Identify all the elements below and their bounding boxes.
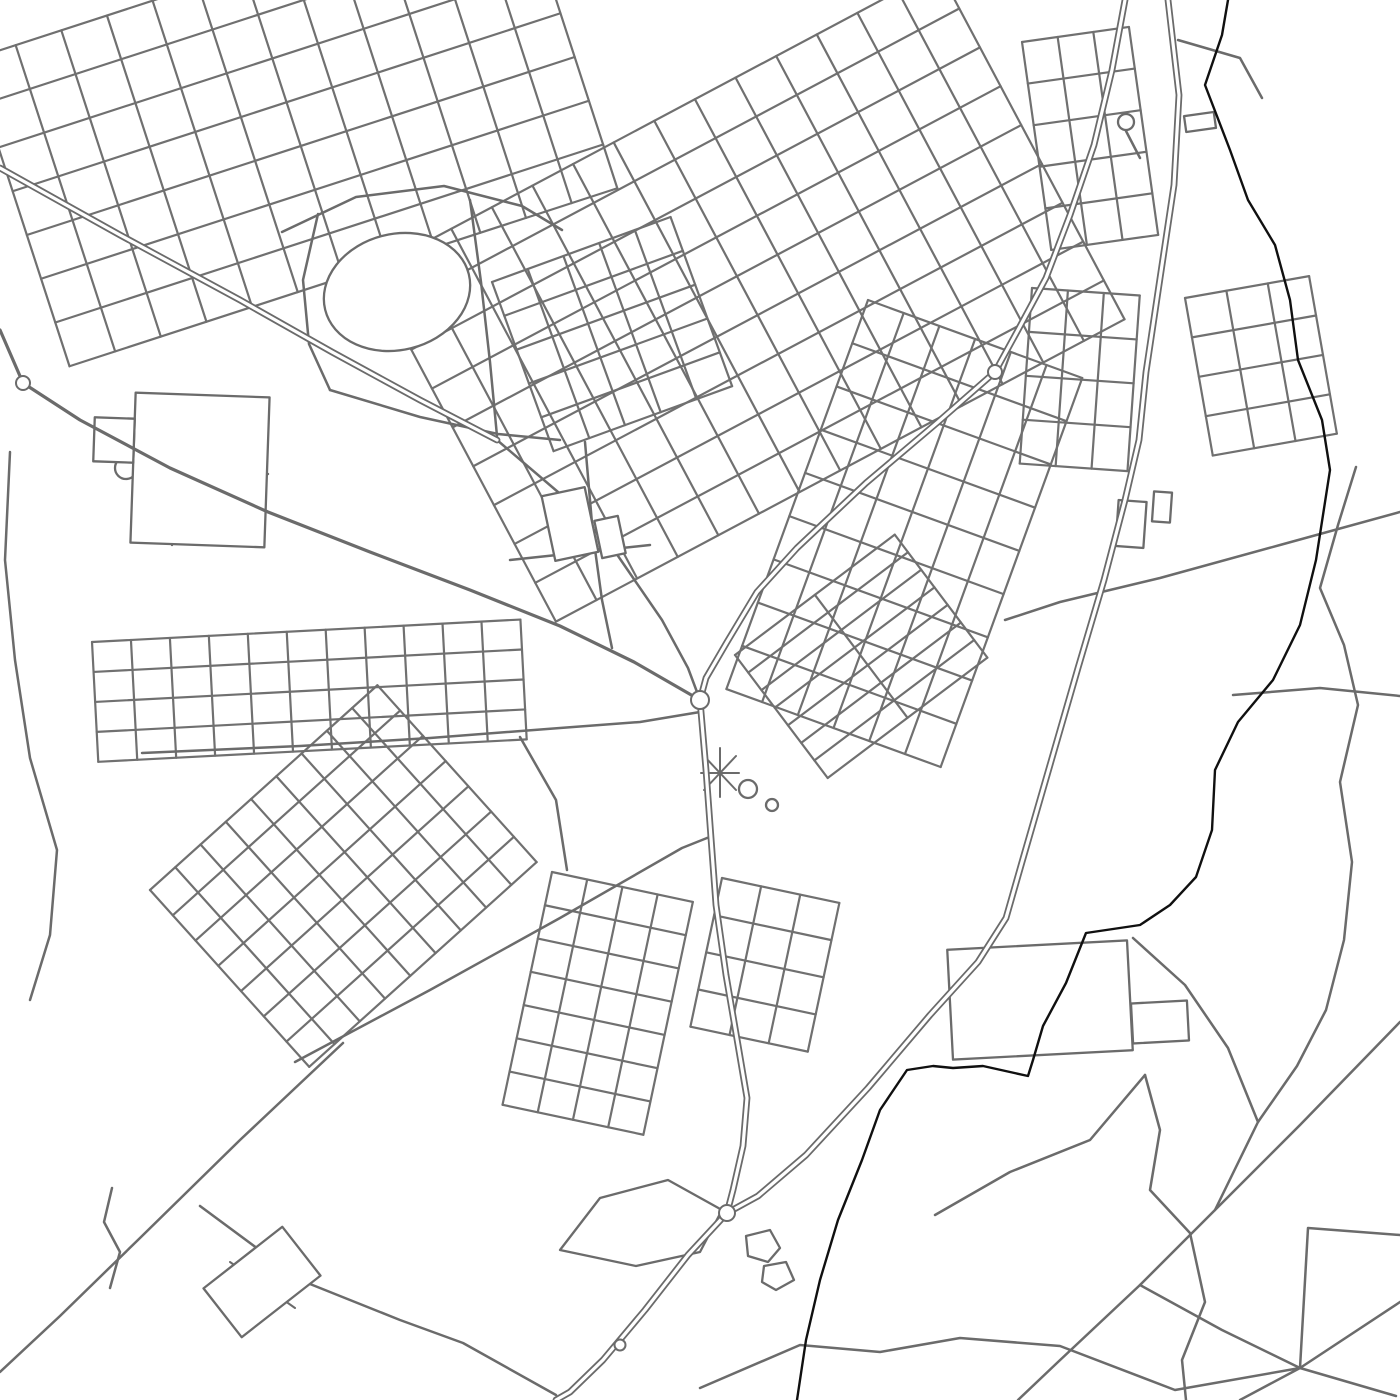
rural-link-a bbox=[935, 1075, 1145, 1215]
grid-northeast-upper bbox=[1022, 27, 1158, 250]
artery-south-casing bbox=[556, 700, 747, 1400]
map-page bbox=[0, 0, 1400, 1400]
roundabout-northeast bbox=[988, 365, 1002, 379]
stadium-east-road bbox=[470, 200, 497, 436]
junction-arm-ne bbox=[1300, 1302, 1400, 1368]
left-edge-curvy-road bbox=[5, 452, 57, 1000]
southwest-grid-boundary bbox=[295, 836, 712, 1062]
layer-street-grids bbox=[0, 0, 1337, 1135]
stream-squiggle bbox=[104, 1188, 120, 1288]
grid-south-central bbox=[503, 872, 693, 1135]
roundabout-center bbox=[691, 691, 709, 709]
rural-crossriver-road bbox=[1005, 512, 1400, 620]
northeast-side-road bbox=[1178, 40, 1262, 98]
junction-arm-w bbox=[1140, 1285, 1300, 1368]
roundabout-south bbox=[719, 1205, 735, 1221]
rural-bottom-road bbox=[700, 1338, 1300, 1390]
interchange-leaf bbox=[560, 1180, 722, 1266]
plaza-circle-large bbox=[739, 780, 757, 798]
plaza-circle-small bbox=[766, 799, 778, 811]
grid-midwest-blocks bbox=[92, 620, 527, 762]
river bbox=[797, 0, 1330, 1400]
campus-rect-west-annex bbox=[93, 417, 135, 462]
rural-long-diagonal-se bbox=[1018, 1022, 1400, 1400]
diagonal-west-artery bbox=[0, 330, 700, 700]
roundabout-west bbox=[16, 376, 30, 390]
grid-northwest bbox=[0, 0, 617, 366]
building-sw bbox=[204, 1227, 321, 1337]
pond-blob-a bbox=[746, 1230, 780, 1262]
grid-riverside-blocks bbox=[1185, 276, 1337, 455]
compound-se-annex bbox=[1131, 1001, 1189, 1044]
junction-arm-n bbox=[1300, 1228, 1400, 1368]
artery-northeast-curve-casing bbox=[700, 0, 1125, 700]
artery-south-median bbox=[556, 700, 747, 1400]
building-east-b bbox=[1152, 491, 1172, 522]
rural-curvy-vertical-se bbox=[1145, 1075, 1205, 1400]
rural-east-ridge bbox=[1215, 467, 1358, 1210]
artery-northeast-curve-median bbox=[700, 0, 1125, 700]
roundabout-south-minor bbox=[615, 1340, 626, 1351]
campus-rect-west bbox=[130, 393, 269, 548]
junction-arm-se bbox=[1300, 1368, 1396, 1396]
layer-major-arteries bbox=[0, 0, 1179, 1400]
compound-se bbox=[947, 940, 1133, 1059]
rural-diagonal-sw bbox=[0, 1043, 343, 1372]
layer-shapes bbox=[93, 112, 1216, 1337]
building-ne bbox=[1184, 112, 1216, 132]
layer-water bbox=[797, 0, 1330, 1400]
pond-blob-b bbox=[762, 1262, 794, 1290]
layer-secondary-arteries bbox=[0, 330, 700, 700]
rural-east-horizontal bbox=[1233, 688, 1400, 696]
small-circle-ne bbox=[1118, 114, 1134, 130]
city-map-svg[interactable] bbox=[0, 0, 1400, 1400]
